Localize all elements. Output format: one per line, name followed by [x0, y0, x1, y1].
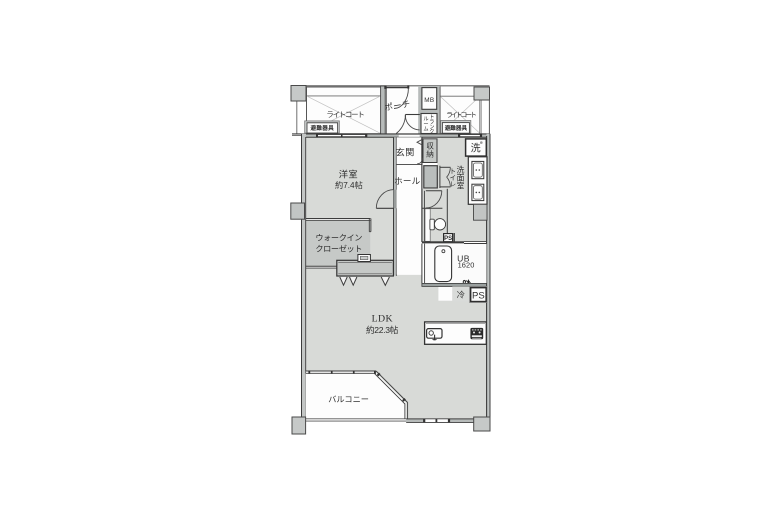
svg-text:洋室: 洋室: [339, 168, 358, 179]
svg-text:納: 納: [426, 149, 434, 159]
svg-text:避難器具: 避難器具: [311, 124, 335, 132]
svg-text:MB: MB: [424, 97, 434, 104]
svg-text:1620: 1620: [458, 260, 475, 269]
svg-text:ライトコート: ライトコート: [446, 111, 476, 119]
svg-text:洗: 洗: [471, 143, 481, 155]
svg-text:ム: ム: [423, 126, 428, 133]
svg-text:冷: 冷: [457, 290, 465, 300]
svg-text:LDK: LDK: [372, 314, 393, 325]
svg-text:バルコニー: バルコニー: [328, 395, 369, 404]
svg-text:クローゼット: クローゼット: [315, 243, 362, 253]
svg-text:約22.3帖: 約22.3帖: [366, 324, 399, 335]
svg-text:約7.4帖: 約7.4帖: [335, 180, 363, 190]
svg-text:ライトコート: ライトコート: [326, 110, 364, 119]
svg-text:レ: レ: [450, 182, 457, 189]
svg-text:ホール: ホール: [394, 176, 421, 186]
svg-text:PS: PS: [472, 290, 485, 301]
svg-text:避難器具: 避難器具: [445, 124, 468, 132]
svg-text:ウォークイン: ウォークイン: [315, 233, 362, 242]
svg-text:玄関: 玄関: [396, 146, 415, 157]
svg-text:室: 室: [457, 181, 465, 191]
